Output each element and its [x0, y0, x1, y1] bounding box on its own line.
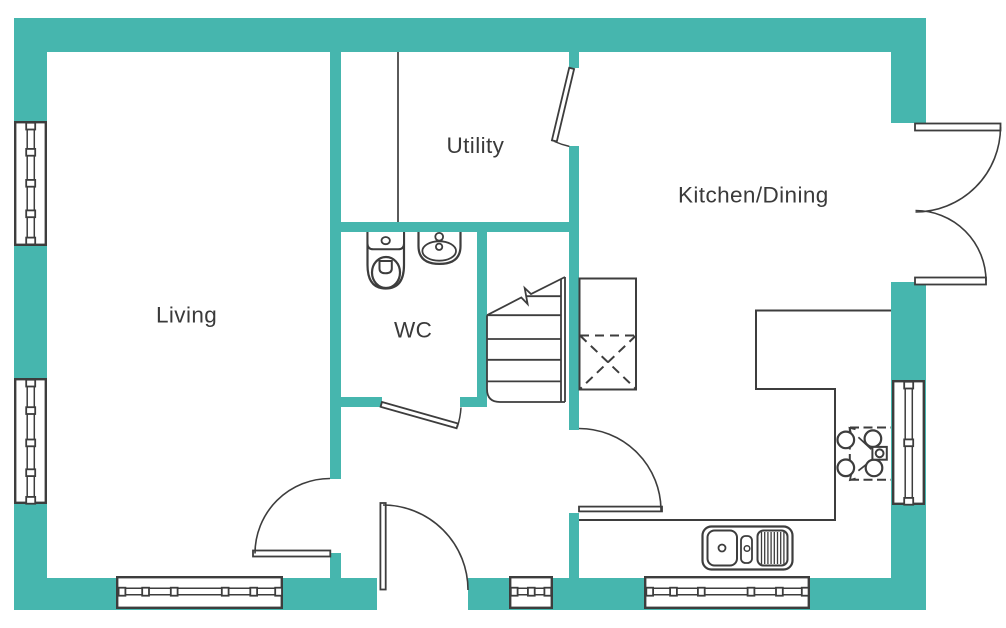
- svg-text:WC: WC: [394, 318, 432, 343]
- svg-text:Utility: Utility: [447, 133, 505, 158]
- svg-text:Living: Living: [156, 303, 217, 328]
- svg-text:Kitchen/Dining: Kitchen/Dining: [678, 183, 829, 208]
